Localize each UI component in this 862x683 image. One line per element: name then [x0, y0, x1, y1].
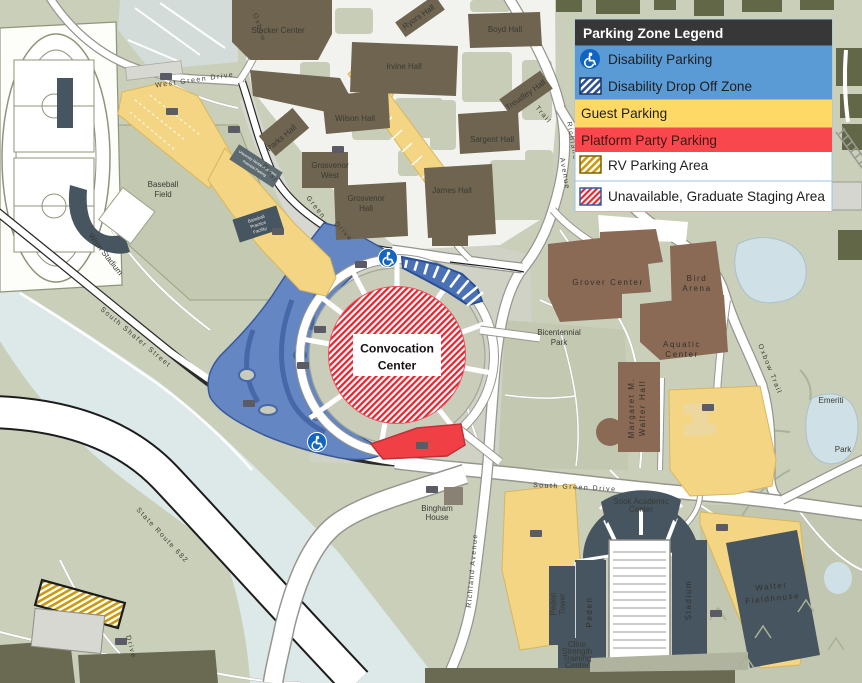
svg-text:Bingham: Bingham	[421, 504, 453, 513]
svg-text:Park: Park	[835, 445, 852, 454]
svg-text:Parking Zone Legend: Parking Zone Legend	[583, 26, 723, 41]
svg-text:Walter Hall: Walter Hall	[638, 380, 647, 436]
svg-text:House: House	[425, 513, 449, 522]
svg-text:Aquatic: Aquatic	[663, 340, 701, 349]
svg-text:Peden: Peden	[585, 596, 594, 627]
svg-text:Margaret M.: Margaret M.	[627, 378, 636, 439]
svg-text:Boyd Hall: Boyd Hall	[488, 25, 522, 34]
svg-text:Bird: Bird	[687, 274, 708, 283]
svg-text:Disability Drop Off Zone: Disability Drop Off Zone	[608, 79, 752, 94]
svg-text:Disability Parking: Disability Parking	[608, 52, 712, 67]
svg-text:Irvine Hall: Irvine Hall	[386, 62, 422, 71]
svg-text:Tower: Tower	[558, 593, 567, 615]
svg-text:Grover Center: Grover Center	[572, 278, 643, 287]
svg-text:Hall: Hall	[359, 204, 373, 213]
svg-text:West: West	[321, 171, 340, 180]
svg-text:Center: Center	[665, 350, 699, 359]
svg-text:Unavailable, Graduate Staging: Unavailable, Graduate Staging Area	[608, 189, 825, 204]
svg-text:Center: Center	[629, 505, 653, 514]
svg-text:Wilson Hall: Wilson Hall	[335, 114, 375, 123]
svg-text:Stadium: Stadium	[684, 580, 693, 621]
svg-text:Grosvenor: Grosvenor	[347, 194, 385, 203]
svg-text:Center: Center	[565, 661, 589, 670]
svg-text:Field: Field	[154, 190, 171, 199]
svg-text:Peden: Peden	[549, 592, 558, 615]
svg-text:Sargent Hall: Sargent Hall	[470, 135, 514, 144]
svg-text:Convocation: Convocation	[360, 342, 434, 356]
svg-text:Center: Center	[378, 359, 417, 373]
svg-text:Emeriti: Emeriti	[819, 396, 844, 405]
svg-text:RV Parking Area: RV Parking Area	[608, 158, 709, 173]
svg-text:James Hall: James Hall	[432, 186, 472, 195]
svg-text:Guest Parking: Guest Parking	[581, 106, 667, 121]
svg-text:Park: Park	[551, 338, 568, 347]
svg-text:Arena: Arena	[682, 284, 711, 293]
svg-text:Baseball: Baseball	[148, 180, 179, 189]
svg-text:Platform Party Parking: Platform Party Parking	[581, 133, 717, 148]
svg-text:Bicentennial: Bicentennial	[537, 328, 581, 337]
svg-text:Grosvenor: Grosvenor	[311, 161, 349, 170]
